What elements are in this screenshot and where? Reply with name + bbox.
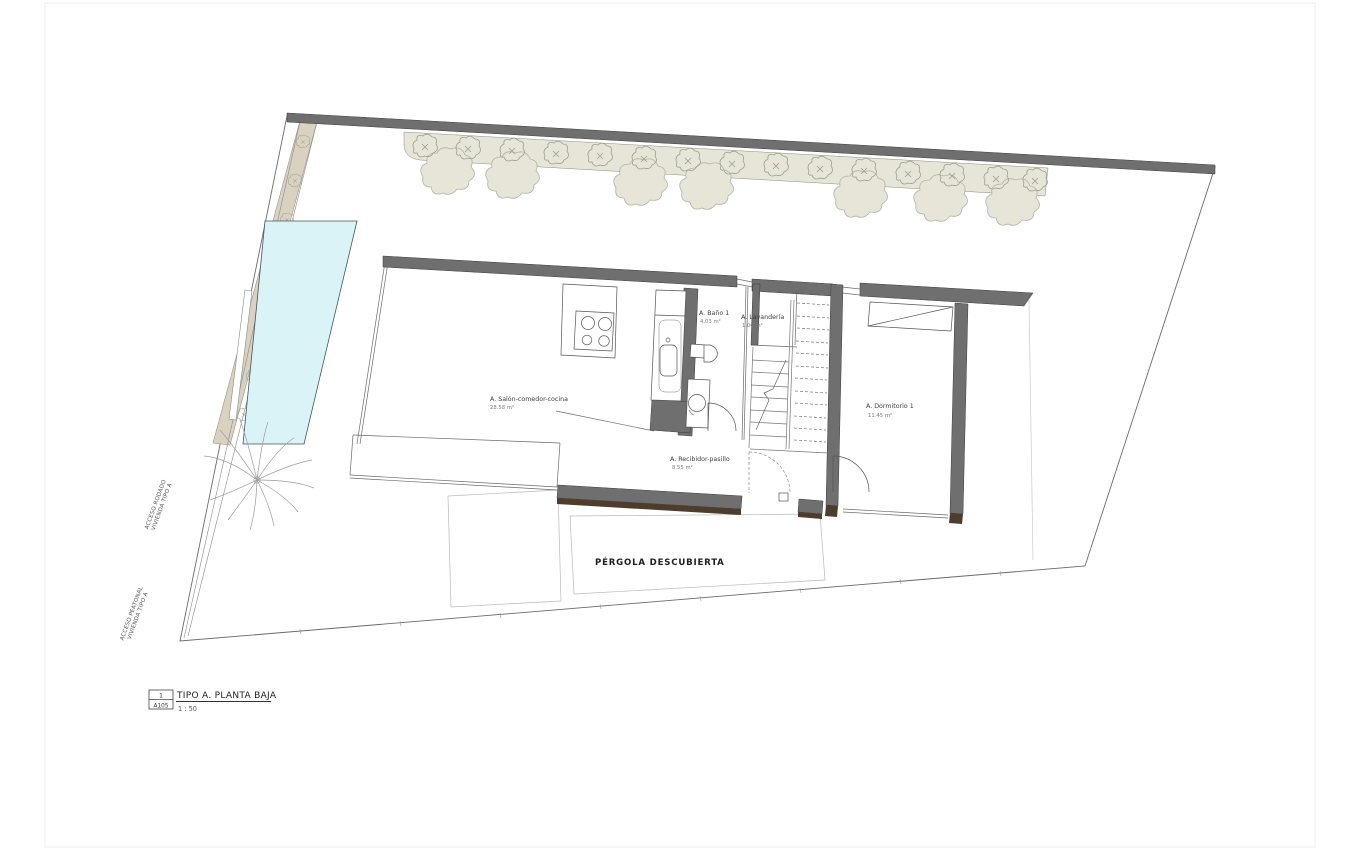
title-block: 1 A105 TIPO A. PLANTA BAJA 1 : 50: [149, 690, 277, 713]
toilet-bowl: [704, 345, 717, 362]
label-bano: A. Baño 1: [699, 310, 729, 317]
area-recibidor: 8.55 m²: [672, 464, 693, 471]
area-lavanderia: 1.06 m²: [742, 322, 763, 329]
drawing-title: TIPO A. PLANTA BAJA: [176, 691, 277, 701]
acceso-peatonal-label: ACCESO PEATONAL VIVIENDA TIPO A: [119, 585, 151, 644]
bathroom-door: [708, 403, 736, 431]
boundary-ticks: [300, 571, 1001, 634]
label-lavanderia: A. Lavandería: [741, 313, 784, 321]
kitchen-fixtures: [561, 284, 686, 401]
bathroom-fixtures: [686, 344, 736, 431]
area-bano: 4.03 m²: [700, 318, 721, 325]
drawing-scale: 1 : 50: [178, 705, 197, 713]
toilet-tank: [690, 344, 705, 358]
pool: [243, 221, 357, 444]
wardrobe: [868, 302, 953, 331]
plot-inner-line: [1029, 300, 1033, 560]
label-recibidor: A. Recibidor-pasillo: [670, 456, 730, 463]
label-dormitorio: A. Dormitorio 1: [866, 403, 914, 410]
label-salon: A. Salón-comedor-cocina: [490, 395, 568, 403]
detail-number: 1: [159, 692, 163, 700]
sheet-code: A105: [153, 704, 168, 710]
wall-shadows: [557, 498, 963, 524]
label-pergola: PÉRGOLA DESCUBIERTA: [595, 556, 725, 568]
area-salon: 28.58 m²: [490, 404, 514, 411]
house: [350, 256, 1033, 524]
floor-plan-svg: A. Salón-comedor-cocina 28.58 m² A. Baño…: [0, 0, 1360, 850]
drawing-sheet: A. Salón-comedor-cocina 28.58 m² A. Baño…: [0, 0, 1360, 850]
acceso-rodado-label: ACCESO RODADO VIVIENDA TIPO A: [144, 479, 174, 533]
area-dormitorio: 11.45 m²: [868, 412, 892, 419]
door-jamb: [779, 493, 788, 501]
glass-walls: [350, 262, 948, 518]
washbasin: [686, 379, 710, 428]
entrance-door: [749, 452, 790, 493]
